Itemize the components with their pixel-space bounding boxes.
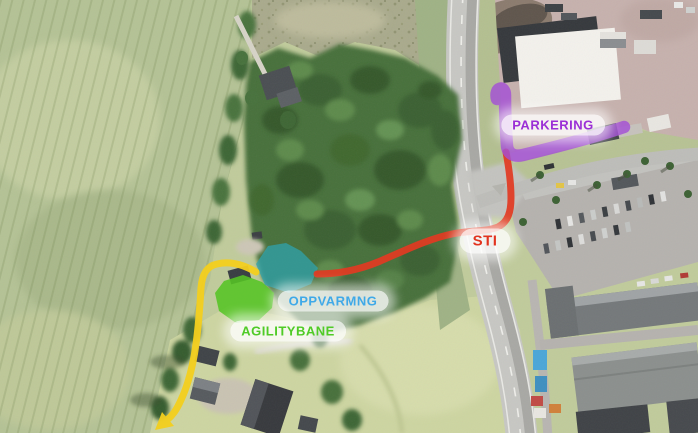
aerial-map: PARKERING STI OPPVARMNG AGILITYBANE	[0, 0, 698, 433]
route-overlays	[0, 0, 698, 433]
sti-label: STI	[460, 229, 511, 254]
oppvarmng-label: OPPVARMNG	[278, 291, 389, 312]
trail-route	[317, 152, 511, 274]
parkering-label: PARKERING	[501, 115, 605, 136]
oppvarmng-label-text: OPPVARMNG	[289, 294, 378, 309]
agilitybane-label: AGILITYBANE	[230, 321, 346, 342]
sti-label-text: STI	[473, 233, 498, 250]
agilitybane-label-text: AGILITYBANE	[241, 324, 335, 339]
parkering-label-text: PARKERING	[512, 118, 594, 133]
